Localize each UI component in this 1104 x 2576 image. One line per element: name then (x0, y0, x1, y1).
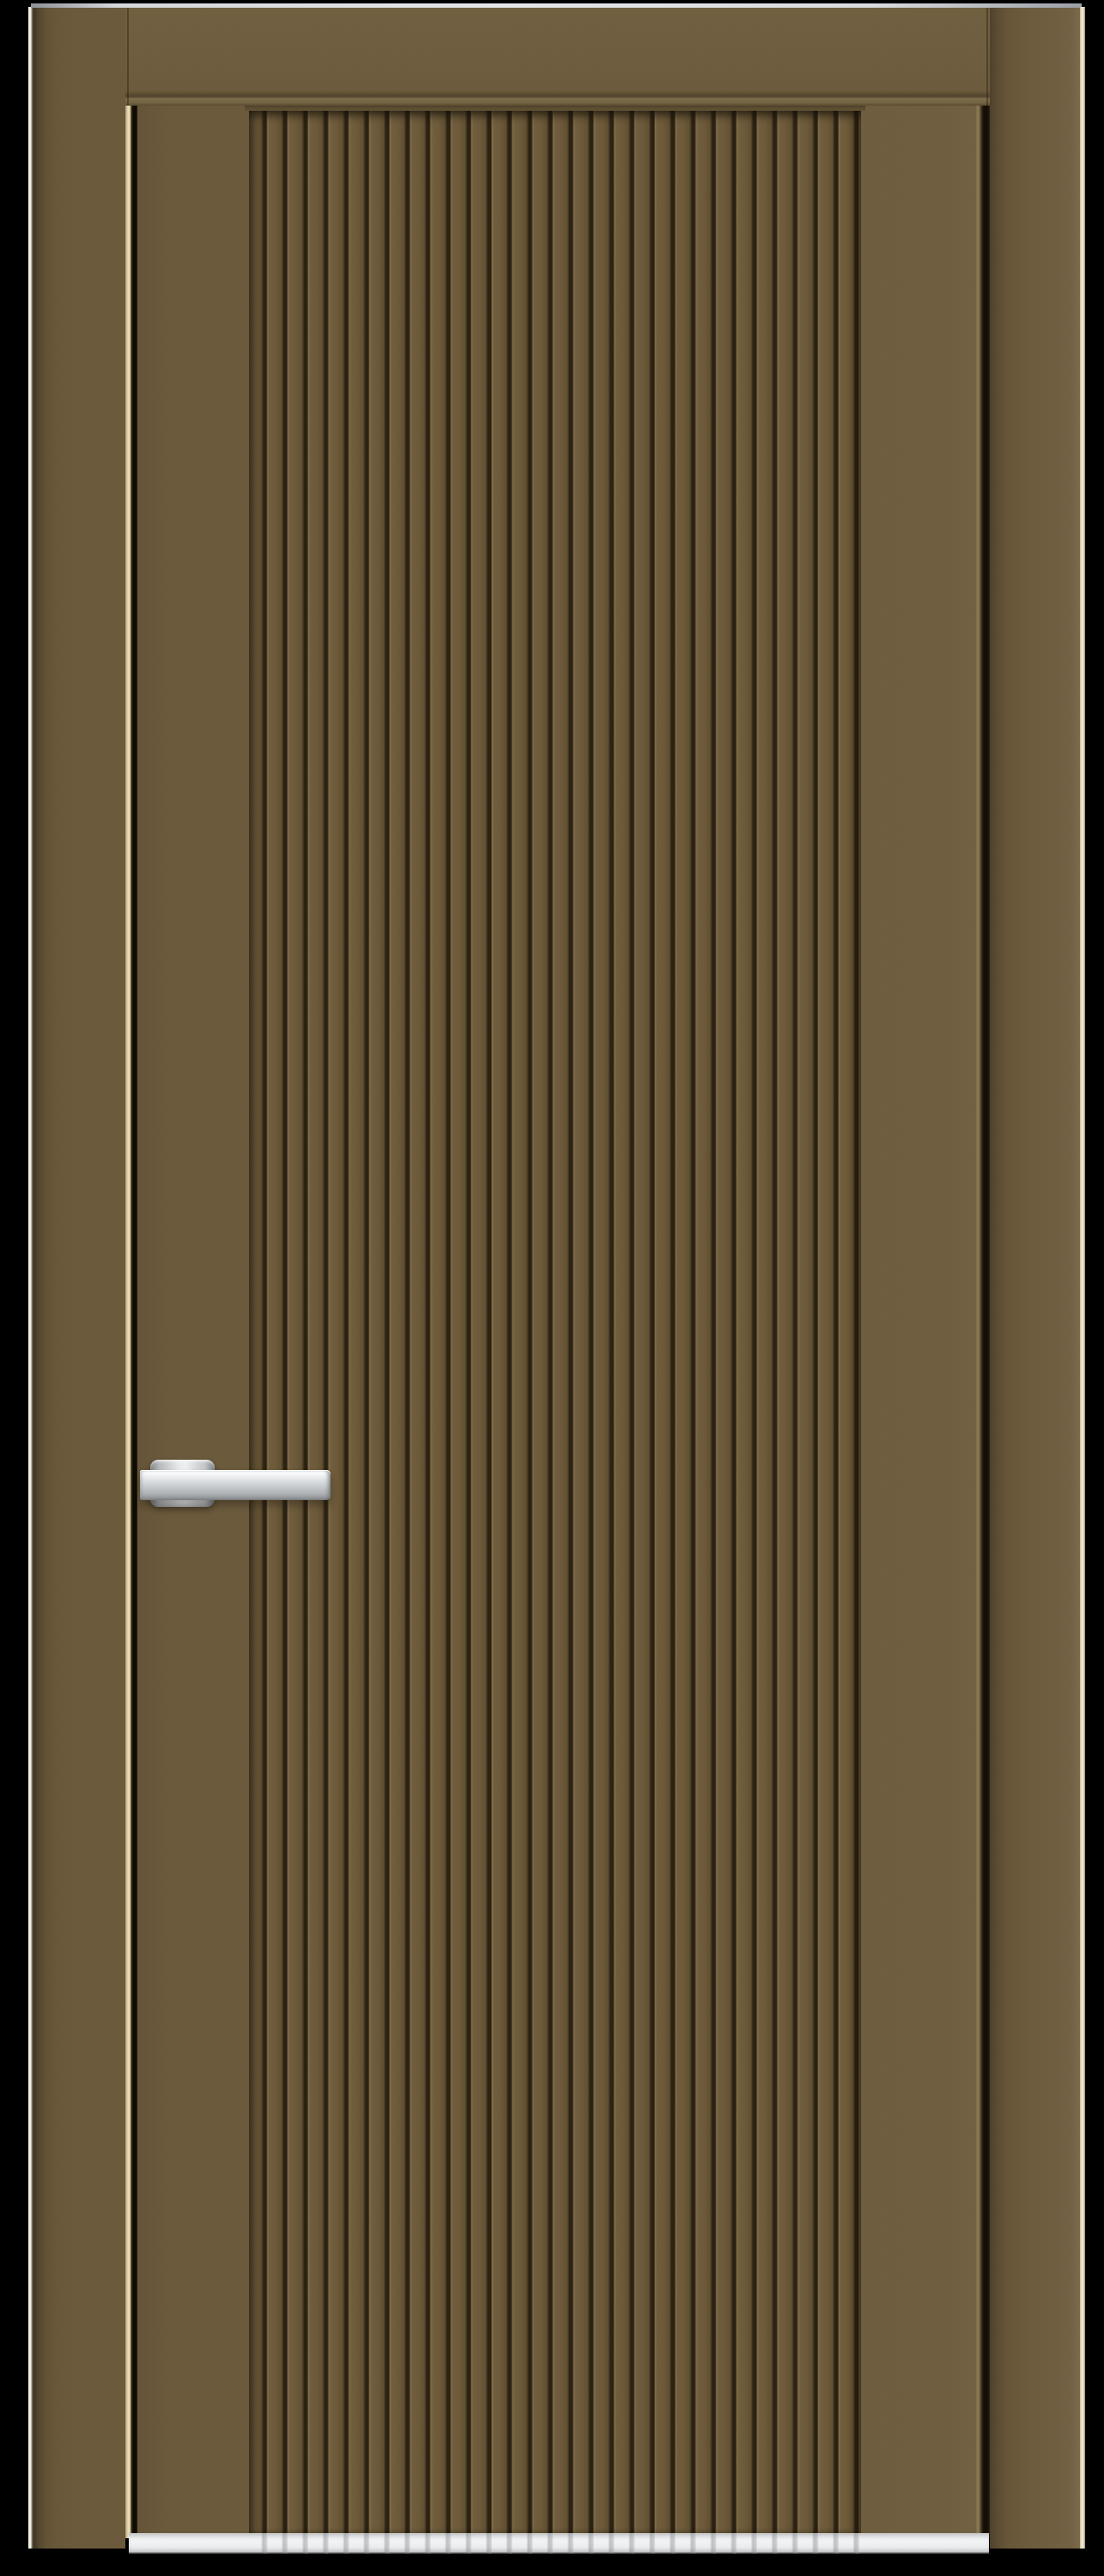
door-leaf (137, 101, 976, 2533)
leaf-frame-gap-right (976, 100, 990, 2538)
floor-reflection (249, 2533, 861, 2554)
product-image[interactable] (0, 0, 1104, 2576)
door-frame-top (125, 7, 990, 106)
door-handle-lever (140, 1470, 331, 1500)
door-frame-left (28, 7, 125, 2549)
door-frame-right (990, 7, 1080, 2549)
floor-strip (129, 2533, 989, 2554)
door-top-edge-highlight (31, 3, 1082, 8)
fluted-panel (249, 110, 861, 2533)
door-frame-right-edge-highlight (1080, 7, 1085, 2549)
leaf-frame-gap-left (125, 100, 137, 2538)
